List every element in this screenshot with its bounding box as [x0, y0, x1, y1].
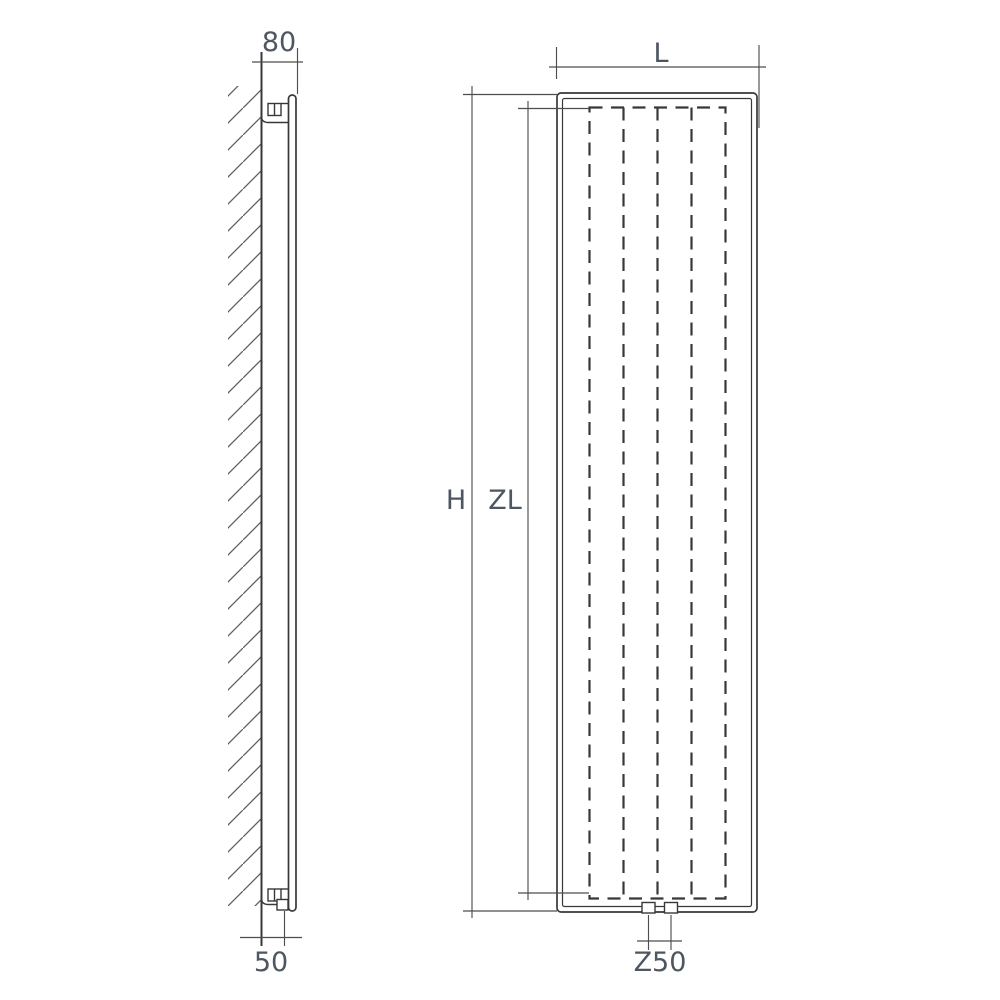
heating-element-dashed: [590, 108, 726, 899]
dim-label-wall-offset-top: 80: [262, 27, 296, 58]
radiator-panel-side: [289, 95, 297, 911]
mounting-bracket-top: [262, 104, 289, 123]
pipe-connection-side: [277, 900, 288, 911]
side-view: 80 50: [228, 27, 303, 978]
front-view: L H ZL Z50: [446, 38, 766, 978]
dimension-element-height: ZL: [488, 101, 589, 900]
dim-label-connection-spacing: Z50: [634, 947, 687, 978]
radiator-dimension-drawing: 80 50 L: [0, 0, 1000, 1000]
dim-label-wall-offset-bottom: 50: [254, 947, 288, 978]
dim-label-width: L: [653, 38, 668, 69]
mounting-bracket-bottom: [262, 889, 289, 910]
dim-label-overall-height: H: [446, 485, 466, 516]
wall-hatching: [228, 86, 262, 906]
connection-stub-left: [642, 903, 655, 914]
dimension-wall-offset-top: 80: [252, 27, 303, 94]
dimension-connection-spacing: Z50: [634, 915, 687, 978]
dimension-wall-offset-bottom: 50: [240, 911, 302, 978]
connection-stub-right: [665, 903, 678, 914]
dim-label-element-height: ZL: [488, 485, 522, 516]
technical-drawing-canvas: 80 50 L: [0, 0, 1000, 1000]
